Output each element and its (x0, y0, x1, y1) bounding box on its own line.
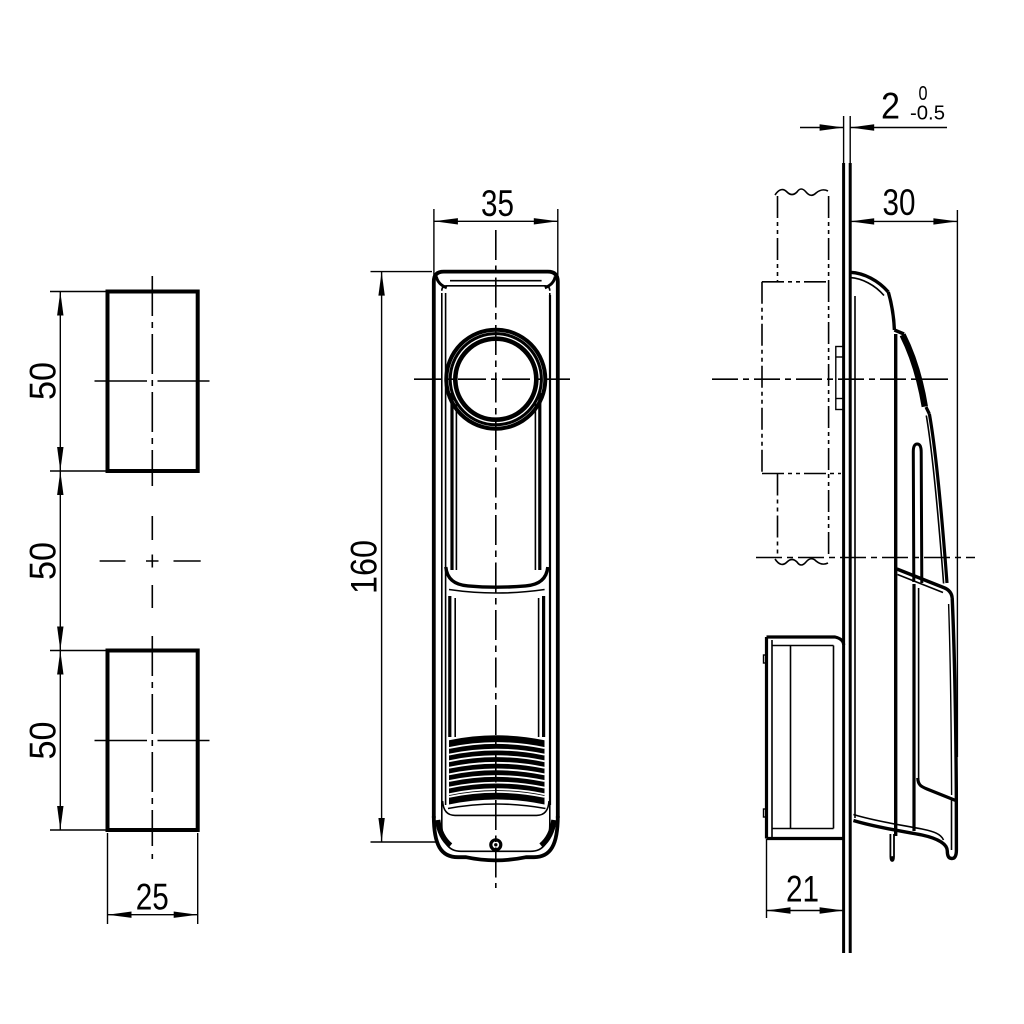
svg-text:21: 21 (786, 869, 819, 910)
svg-text:-0.5: -0.5 (910, 102, 945, 124)
svg-text:2: 2 (881, 86, 900, 127)
svg-text:50: 50 (23, 542, 64, 580)
svg-text:25: 25 (136, 877, 169, 918)
svg-text:160: 160 (344, 540, 385, 594)
svg-text:30: 30 (883, 182, 916, 223)
svg-text:50: 50 (23, 362, 64, 400)
svg-text:35: 35 (481, 183, 514, 224)
svg-text:50: 50 (23, 722, 64, 760)
